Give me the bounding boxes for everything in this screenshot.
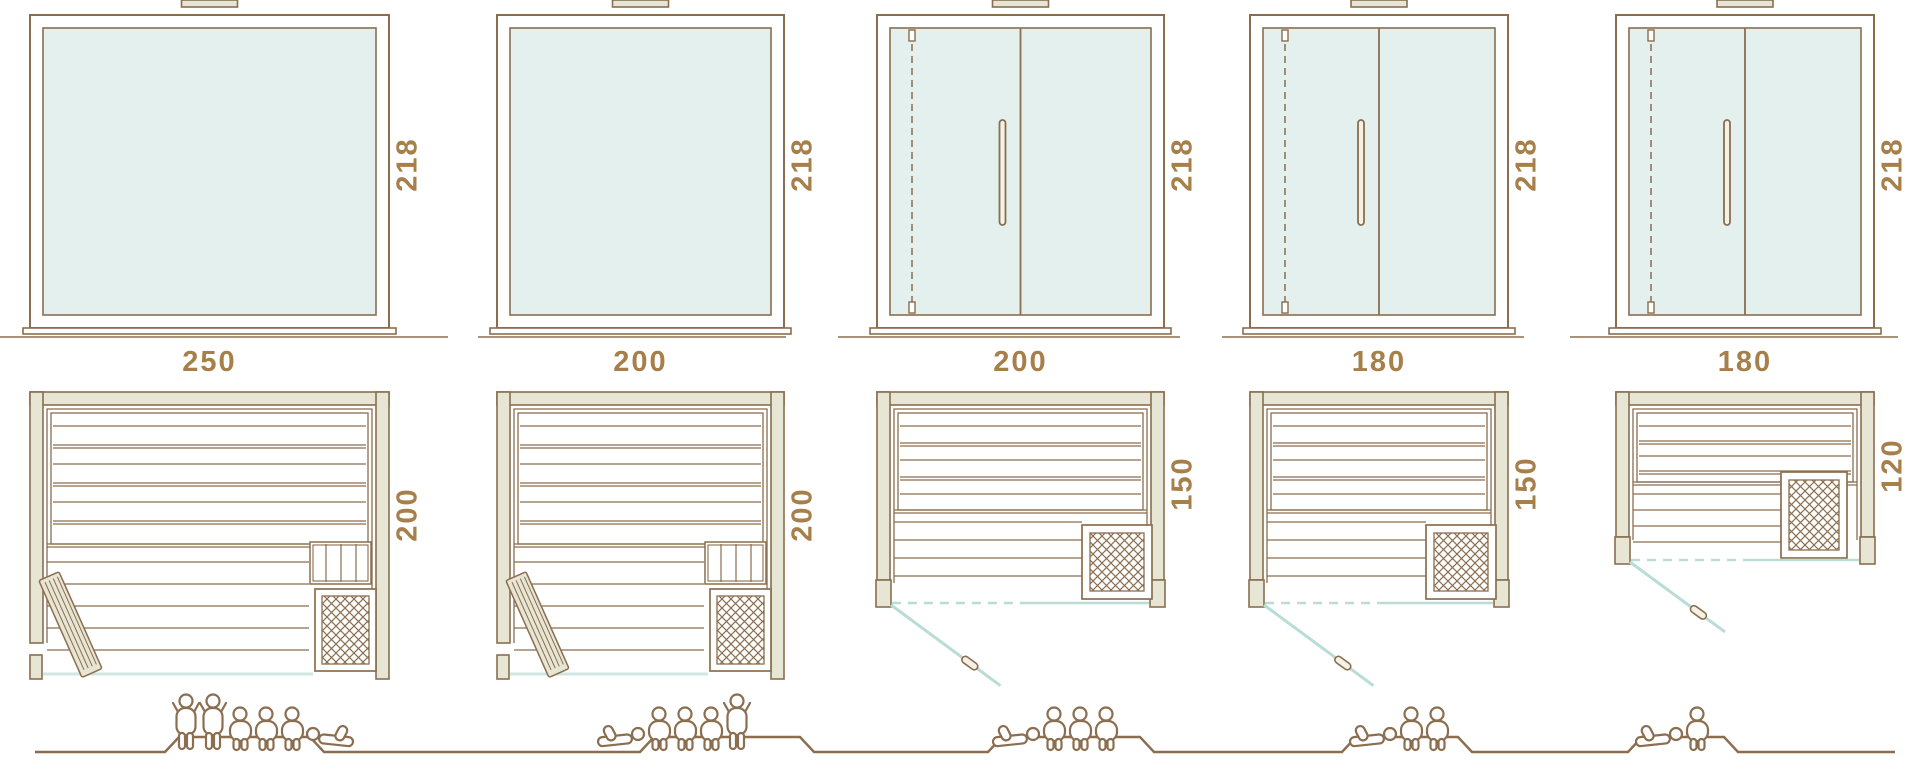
- sauna-4-width-label: 180: [1236, 346, 1522, 379]
- sauna-4-front-elevation: [1236, 0, 1522, 352]
- sauna-2-front-elevation: [483, 0, 798, 352]
- sauna-3-front-elevation: [863, 0, 1178, 352]
- sauna-1-front-elevation: [16, 0, 403, 352]
- sauna-4-height-label: 218: [1511, 125, 1544, 205]
- sauna-5-width-label: 180: [1602, 346, 1888, 379]
- sauna-5-floor-plan: [1602, 390, 1888, 654]
- sauna-2-height-label: 218: [787, 125, 820, 205]
- sauna-3-floor-plan: [863, 390, 1178, 697]
- sauna-2-depth-label: 200: [787, 475, 820, 555]
- sauna-3-depth-label: 150: [1167, 444, 1200, 524]
- sauna-5-height-label: 218: [1877, 125, 1910, 205]
- sauna-4-depth-label: 150: [1511, 444, 1544, 524]
- sauna-size-comparison-diagram: 250 218 200 200 218 200 200 218 150 180 …: [0, 0, 1920, 770]
- sauna-5-front-elevation: [1602, 0, 1888, 352]
- sauna-3-width-label: 200: [863, 346, 1178, 379]
- sauna-2-width-label: 200: [483, 346, 798, 379]
- sauna-1-height-label: 218: [392, 125, 425, 205]
- sauna-5-depth-label: 120: [1877, 426, 1910, 506]
- sauna-column-5: 180 218 120: [1602, 0, 1888, 770]
- sauna-column-3: 200 218 150: [863, 0, 1178, 770]
- sauna-column-1: 250 218 200: [16, 0, 403, 770]
- sauna-3-height-label: 218: [1167, 125, 1200, 205]
- sauna-1-depth-label: 200: [392, 475, 425, 555]
- sauna-2-floor-plan: [483, 390, 798, 769]
- sauna-4-floor-plan: [1236, 390, 1522, 697]
- sauna-1-floor-plan: [16, 390, 403, 769]
- sauna-1-width-label: 250: [16, 346, 403, 379]
- sauna-column-2: 200 218 200: [483, 0, 798, 770]
- sauna-column-4: 180 218 150: [1236, 0, 1522, 770]
